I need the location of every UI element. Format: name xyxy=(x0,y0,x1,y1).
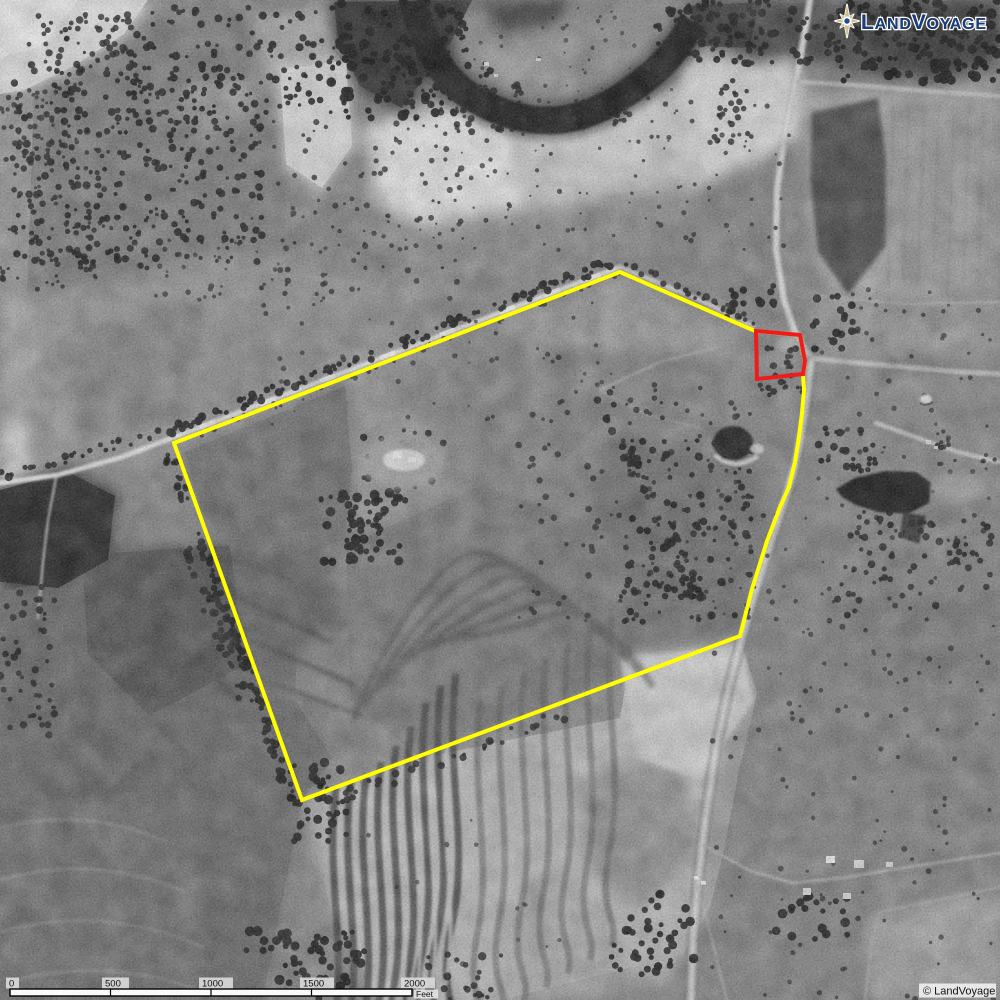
svg-text:1500: 1500 xyxy=(303,979,324,990)
svg-text:1000: 1000 xyxy=(202,979,223,990)
svg-text:© LandVoyage: © LandVoyage xyxy=(923,986,995,998)
svg-text:Feet: Feet xyxy=(416,989,434,999)
svg-text:0: 0 xyxy=(9,979,14,990)
svg-text:2000: 2000 xyxy=(404,979,425,990)
svg-text:500: 500 xyxy=(105,979,121,990)
